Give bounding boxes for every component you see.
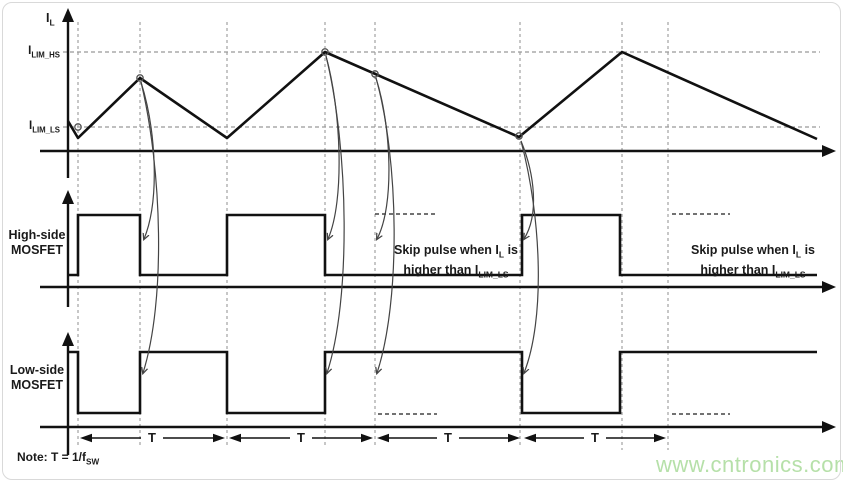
low-side-mosfet-label: Low-side MOSFET: [5, 363, 69, 393]
high-side-mosfet-label: High-side MOSFET: [5, 228, 69, 258]
period-label-1: T: [140, 430, 164, 445]
callout-arrows: [141, 56, 538, 373]
timing-diagram-canvas: [0, 0, 843, 482]
il-axis-arrowhead: [62, 8, 74, 22]
skip-pulse-annotation-1: Skip pulse when IL is higher than ILIM_L…: [385, 243, 527, 282]
timing-diagram: IL ILIM_HS ILIM_LS High-side MOSFET Low-…: [0, 0, 843, 482]
il-axis-label: IL: [46, 11, 55, 31]
ilim-hs-label: ILIM_HS: [14, 44, 60, 62]
hs-time-arrowhead: [822, 281, 836, 293]
axes: [40, 8, 836, 455]
period-label-2: T: [289, 430, 313, 445]
watermark-text: www.cntronics.com: [656, 452, 843, 478]
ls-time-arrowhead: [822, 421, 836, 433]
ilim-ls-label: ILIM_LS: [14, 119, 60, 137]
footnote: Note: T = 1/fSW: [17, 450, 99, 469]
skip-pulse-annotation-2: Skip pulse when IL is higher than ILIM_L…: [682, 243, 824, 282]
period-dimension-lines: [80, 434, 666, 442]
il-waveform: [68, 52, 817, 139]
low-side-waveform: [68, 352, 817, 413]
period-label-3: T: [436, 430, 460, 445]
event-marker-circles: [75, 49, 522, 139]
period-label-4: T: [583, 430, 607, 445]
ls-axis-arrowhead: [62, 332, 74, 346]
il-time-arrowhead: [822, 145, 836, 157]
hs-axis-arrowhead: [62, 190, 74, 204]
